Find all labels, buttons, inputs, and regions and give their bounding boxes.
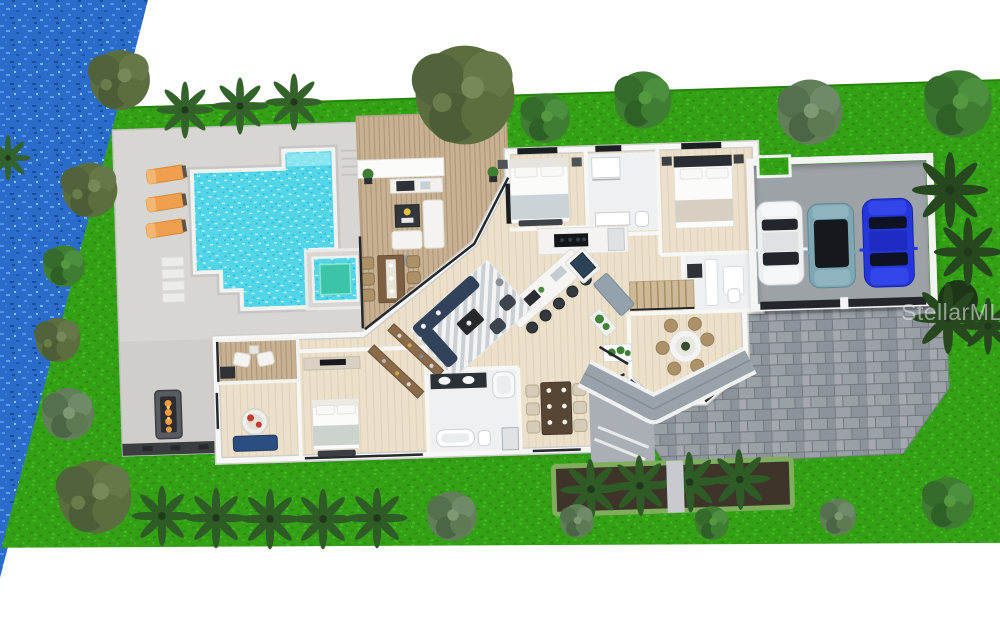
palm-tree: [934, 218, 1000, 286]
front-walk: [666, 460, 685, 513]
bush: [560, 504, 594, 538]
pool-loungers: [144, 164, 190, 238]
palm-tree: [912, 152, 988, 228]
side-yard-gap: [758, 156, 791, 177]
bush: [820, 499, 856, 535]
floor-plan-rendering: StellarMLS: [0, 0, 1000, 624]
tv: [320, 359, 346, 366]
palm-tree: [157, 82, 214, 139]
outdoor-kitchen: [390, 178, 442, 194]
tree: [520, 93, 569, 142]
car-blue: [858, 198, 919, 288]
laundry-bath-floor: [685, 254, 759, 310]
tree: [924, 70, 992, 138]
tanning-ledge: [286, 152, 330, 166]
spa: [305, 249, 365, 309]
dining-table: [541, 382, 573, 435]
tree: [614, 71, 671, 128]
grill: [220, 366, 235, 378]
tree: [778, 80, 843, 145]
palm-tree: [212, 78, 269, 135]
car-white: [752, 200, 809, 286]
palm-tree: [347, 488, 408, 549]
palm-tree: [186, 488, 247, 549]
palm-tree: [266, 74, 323, 131]
bush: [922, 477, 974, 529]
stairs: [629, 280, 694, 310]
tree: [43, 245, 85, 287]
covered-patio: [217, 338, 298, 382]
tree: [42, 388, 94, 440]
garage: [750, 151, 935, 312]
fire-pit: [155, 390, 182, 439]
palm-tree: [240, 489, 301, 550]
bush: [695, 506, 729, 540]
shower: [502, 427, 519, 449]
car-teal: [803, 203, 860, 289]
site-plan-canvas: [0, 0, 1000, 624]
toilet: [478, 430, 490, 445]
bush: [427, 491, 476, 540]
palm-tree: [132, 486, 193, 547]
blue-bench: [233, 435, 277, 451]
palm-tree: [293, 489, 354, 550]
formal-dining: [526, 381, 588, 435]
